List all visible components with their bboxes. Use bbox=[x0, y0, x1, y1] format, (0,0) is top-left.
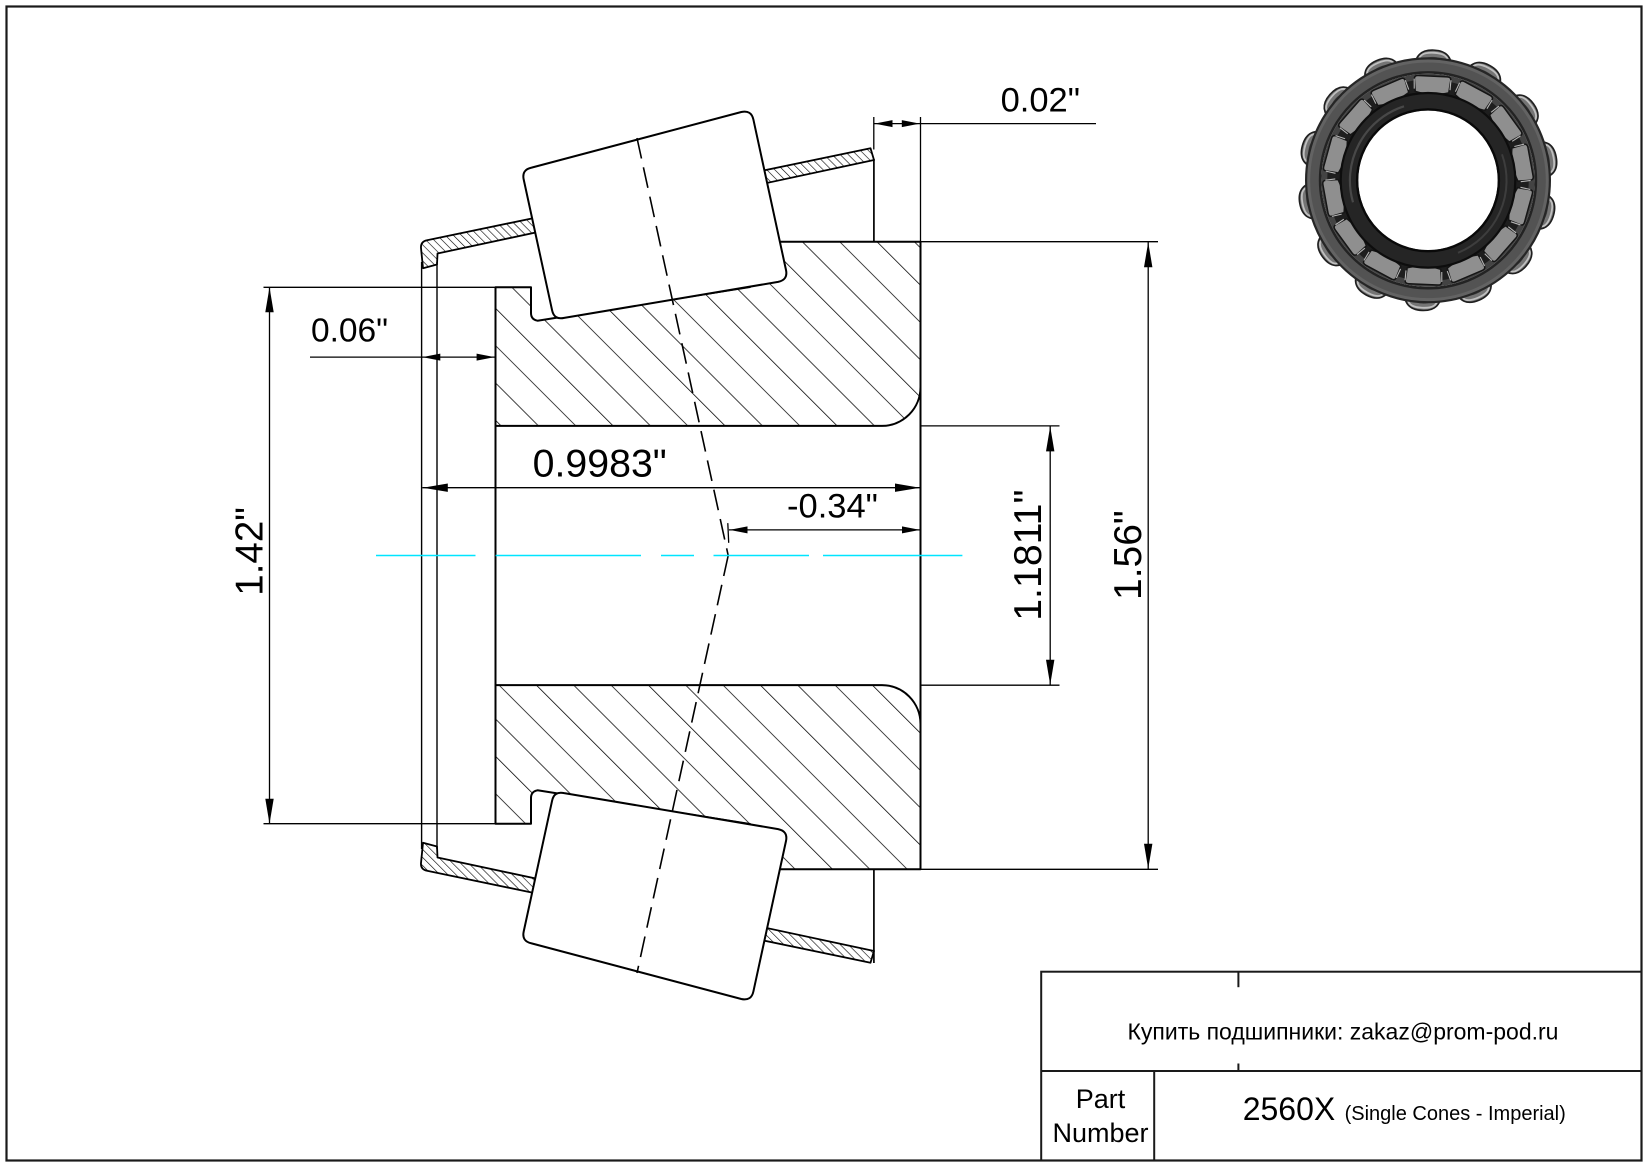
svg-text:Купить подшипники: zakaz@prom-: Купить подшипники: zakaz@prom-pod.ru bbox=[1128, 1018, 1559, 1044]
svg-text:0.06": 0.06" bbox=[311, 313, 388, 350]
svg-text:2560X: 2560X bbox=[1243, 1091, 1336, 1127]
svg-text:1.1811": 1.1811" bbox=[1006, 490, 1050, 621]
svg-text:(Single Cones - Imperial): (Single Cones - Imperial) bbox=[1345, 1103, 1566, 1125]
svg-text:Part: Part bbox=[1076, 1084, 1126, 1114]
svg-text:0.9983": 0.9983" bbox=[533, 442, 667, 486]
svg-text:Number: Number bbox=[1052, 1118, 1148, 1148]
svg-text:0.02": 0.02" bbox=[1001, 82, 1080, 120]
svg-text:1.42": 1.42" bbox=[228, 507, 271, 596]
svg-text:1.56": 1.56" bbox=[1107, 510, 1150, 600]
svg-text:-0.34": -0.34" bbox=[787, 488, 878, 526]
